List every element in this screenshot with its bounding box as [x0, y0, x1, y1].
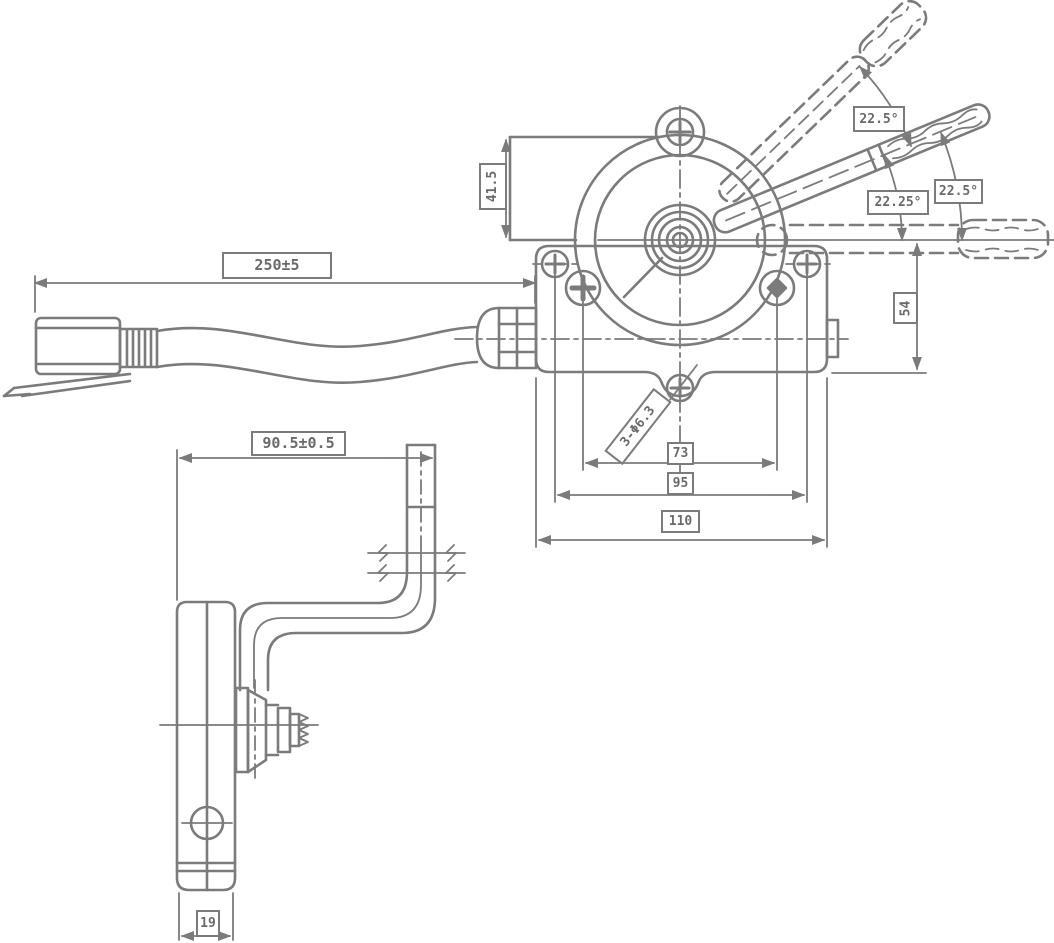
dim-bracket-width-label: 19 [196, 910, 220, 937]
dim-screw-spacing-label: 95 [667, 472, 694, 495]
dim-pivot-height-text: 54 [899, 300, 912, 316]
angle-middle-label: 22.25° [867, 190, 929, 215]
cable [157, 327, 477, 383]
cable-connector [4, 318, 157, 396]
lever-solid [711, 101, 993, 236]
dim-body-width-label: 110 [661, 510, 700, 533]
lever-phantom-raised [712, 0, 931, 209]
dim-pivot-height-label: 54 [893, 292, 918, 324]
angle-upper-label: 22.5° [853, 106, 905, 132]
rod-break-marks [368, 545, 465, 581]
bent-rod [240, 445, 435, 690]
drawing-sheet: 250±5 41.5 22.5° 22.25° 22.5° 54 3-Φ6.3 … [0, 0, 1054, 943]
dim-housing-side-label: 41.5 [479, 163, 507, 210]
dim-hole-spacing-label: 73 [667, 442, 694, 465]
drawing-canvas [0, 0, 1054, 943]
dim-cable-length-label: 250±5 [222, 252, 332, 279]
cable-gland [477, 308, 536, 368]
mounting-plate [536, 246, 838, 396]
angle-lower-label: 22.5° [934, 179, 983, 204]
dim-bracket-offset-label: 90.5±0.5 [251, 431, 346, 456]
shaft-hub [236, 688, 308, 772]
dim-housing-side-text: 41.5 [487, 171, 500, 202]
bracket-plate [177, 602, 235, 890]
